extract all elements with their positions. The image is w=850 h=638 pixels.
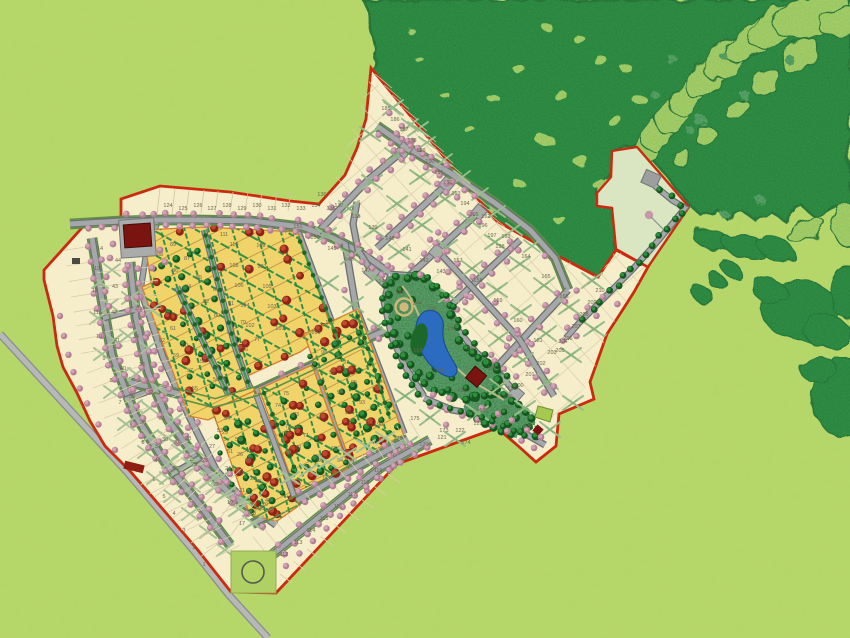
svg-text:90: 90 (377, 422, 383, 428)
svg-text:117: 117 (348, 492, 357, 498)
svg-text:111: 111 (220, 232, 228, 238)
svg-text:126: 126 (193, 203, 202, 209)
svg-text:193: 193 (451, 191, 460, 197)
svg-text:118: 118 (361, 480, 370, 486)
svg-text:166: 166 (559, 294, 568, 300)
svg-text:36: 36 (173, 466, 179, 472)
svg-text:137: 137 (334, 203, 343, 209)
svg-text:108: 108 (229, 263, 238, 269)
svg-text:62: 62 (159, 338, 165, 344)
svg-text:40: 40 (120, 366, 126, 372)
svg-text:119: 119 (374, 468, 383, 474)
svg-text:43: 43 (112, 284, 118, 290)
svg-text:144: 144 (412, 301, 421, 307)
svg-text:171: 171 (501, 406, 510, 412)
svg-text:74: 74 (275, 403, 281, 409)
svg-text:158: 158 (473, 278, 482, 284)
svg-text:8: 8 (109, 378, 112, 384)
svg-text:169: 169 (457, 388, 466, 394)
svg-text:58: 58 (200, 359, 206, 365)
svg-text:172: 172 (523, 424, 532, 430)
svg-text:4: 4 (154, 458, 157, 464)
svg-text:6: 6 (152, 477, 155, 483)
svg-text:132: 132 (281, 203, 290, 209)
svg-text:3: 3 (182, 528, 185, 534)
svg-text:153: 153 (447, 326, 456, 332)
svg-text:86: 86 (172, 268, 178, 274)
svg-text:210: 210 (595, 288, 604, 294)
svg-text:157: 157 (453, 258, 462, 264)
svg-text:34: 34 (133, 334, 139, 340)
svg-text:201: 201 (525, 372, 534, 378)
svg-text:189: 189 (416, 148, 425, 154)
svg-text:10: 10 (96, 334, 102, 340)
svg-text:114: 114 (307, 528, 316, 534)
svg-text:35: 35 (135, 306, 141, 312)
svg-text:59: 59 (173, 353, 179, 359)
svg-text:199: 199 (503, 394, 512, 400)
svg-text:51: 51 (227, 449, 233, 455)
svg-text:112: 112 (280, 552, 289, 558)
svg-text:5: 5 (162, 494, 165, 500)
svg-text:191: 191 (434, 170, 443, 176)
svg-text:71: 71 (303, 433, 309, 439)
svg-text:87: 87 (184, 256, 190, 262)
svg-text:70: 70 (295, 445, 301, 451)
svg-text:5: 5 (141, 440, 144, 446)
svg-text:41: 41 (114, 338, 120, 344)
svg-text:159: 159 (493, 298, 502, 304)
svg-text:84: 84 (185, 284, 191, 290)
svg-text:151: 151 (293, 224, 302, 230)
svg-text:163: 163 (501, 234, 510, 240)
svg-text:170: 170 (479, 408, 488, 414)
svg-text:113: 113 (294, 540, 303, 546)
svg-text:164: 164 (521, 254, 530, 260)
svg-text:44: 44 (115, 258, 121, 264)
svg-text:14: 14 (97, 246, 103, 252)
svg-text:102: 102 (245, 323, 254, 329)
svg-text:149: 149 (327, 246, 336, 252)
svg-text:57: 57 (187, 368, 193, 374)
svg-text:4: 4 (172, 511, 175, 517)
svg-text:103: 103 (267, 304, 276, 310)
svg-text:24: 24 (225, 466, 231, 472)
svg-text:165: 165 (541, 274, 550, 280)
svg-text:7: 7 (118, 400, 121, 406)
svg-text:136: 136 (317, 192, 326, 198)
svg-text:82: 82 (203, 299, 209, 305)
svg-text:105: 105 (262, 284, 271, 290)
svg-text:152: 152 (427, 306, 436, 312)
svg-text:3: 3 (168, 475, 171, 481)
svg-text:50: 50 (245, 458, 251, 464)
svg-text:80: 80 (214, 313, 220, 319)
svg-text:55: 55 (192, 386, 198, 392)
svg-text:150: 150 (310, 235, 319, 241)
svg-text:85: 85 (196, 275, 202, 281)
svg-text:173: 173 (439, 428, 448, 434)
svg-text:73: 73 (293, 412, 299, 418)
svg-text:104: 104 (240, 303, 249, 309)
svg-text:186: 186 (390, 117, 399, 123)
svg-text:155: 155 (487, 366, 496, 372)
svg-text:33: 33 (139, 362, 145, 368)
svg-text:128: 128 (222, 203, 231, 209)
svg-text:197: 197 (487, 233, 496, 239)
svg-text:109: 109 (256, 243, 265, 249)
svg-text:26: 26 (237, 452, 243, 458)
svg-text:22: 22 (213, 482, 219, 488)
svg-text:188: 188 (407, 138, 416, 144)
svg-text:198: 198 (495, 244, 504, 250)
svg-text:81: 81 (228, 301, 234, 307)
svg-text:140: 140 (385, 236, 394, 242)
svg-text:209: 209 (587, 300, 596, 306)
svg-text:49: 49 (237, 470, 243, 476)
svg-text:194: 194 (460, 201, 469, 207)
svg-text:89: 89 (170, 242, 176, 248)
svg-text:116: 116 (334, 504, 343, 510)
svg-text:52: 52 (235, 437, 241, 443)
svg-text:115: 115 (320, 516, 329, 522)
svg-text:29: 29 (191, 462, 197, 468)
svg-text:127: 127 (207, 206, 216, 212)
svg-text:61: 61 (170, 326, 176, 332)
svg-text:106: 106 (234, 283, 243, 289)
svg-text:160: 160 (513, 318, 522, 324)
svg-text:143: 143 (436, 269, 445, 275)
svg-text:187: 187 (399, 127, 408, 133)
svg-text:162: 162 (481, 214, 490, 220)
svg-text:134: 134 (311, 203, 320, 209)
svg-text:11: 11 (93, 310, 99, 316)
svg-text:202: 202 (536, 361, 545, 367)
svg-text:32: 32 (147, 390, 153, 396)
svg-text:207: 207 (571, 324, 580, 330)
svg-text:72: 72 (285, 424, 291, 430)
svg-text:77: 77 (254, 337, 260, 343)
svg-text:123: 123 (473, 421, 482, 427)
svg-text:30: 30 (173, 440, 179, 446)
svg-text:94: 94 (337, 390, 343, 396)
svg-text:133: 133 (296, 206, 305, 212)
svg-text:65: 65 (331, 446, 337, 452)
svg-text:196: 196 (478, 223, 487, 229)
svg-text:208: 208 (579, 312, 588, 318)
svg-text:25: 25 (202, 458, 208, 464)
svg-text:21: 21 (239, 488, 245, 494)
svg-text:42: 42 (111, 310, 117, 316)
svg-text:131: 131 (267, 206, 276, 212)
svg-text:17: 17 (239, 521, 245, 527)
svg-text:195: 195 (469, 212, 478, 218)
svg-text:100: 100 (311, 330, 320, 336)
svg-text:205: 205 (555, 348, 564, 354)
svg-text:107: 107 (257, 264, 266, 270)
svg-text:141: 141 (402, 247, 411, 253)
svg-text:75: 75 (283, 391, 289, 397)
svg-text:190: 190 (425, 159, 434, 165)
svg-text:206: 206 (563, 336, 572, 342)
svg-text:175: 175 (410, 416, 419, 422)
svg-text:146: 146 (378, 279, 387, 285)
svg-text:20: 20 (262, 502, 268, 508)
svg-text:138: 138 (351, 214, 360, 220)
svg-text:91: 91 (367, 420, 373, 426)
svg-text:76: 76 (242, 347, 248, 353)
svg-text:129: 129 (237, 206, 246, 212)
svg-text:147: 147 (361, 268, 370, 274)
svg-text:185: 185 (381, 106, 390, 112)
svg-text:167: 167 (413, 348, 422, 354)
svg-text:29: 29 (222, 430, 228, 436)
svg-text:161: 161 (533, 338, 542, 344)
svg-text:2: 2 (192, 545, 195, 551)
svg-text:31: 31 (159, 416, 165, 422)
svg-text:124: 124 (163, 203, 172, 209)
svg-text:12: 12 (92, 288, 98, 294)
svg-text:148: 148 (344, 257, 353, 263)
svg-text:96: 96 (329, 370, 335, 376)
svg-text:142: 142 (419, 258, 428, 264)
svg-text:54: 54 (224, 416, 230, 422)
svg-text:121: 121 (437, 435, 446, 441)
svg-text:101: 101 (275, 326, 284, 332)
svg-text:19: 19 (227, 500, 233, 506)
svg-text:125: 125 (178, 206, 187, 212)
svg-text:110: 110 (230, 242, 239, 248)
svg-text:60: 60 (182, 343, 188, 349)
svg-text:154: 154 (467, 346, 476, 352)
svg-text:13: 13 (94, 266, 100, 272)
svg-text:9: 9 (102, 356, 105, 362)
svg-text:92: 92 (345, 410, 351, 416)
svg-text:30: 30 (162, 437, 168, 443)
svg-text:1: 1 (202, 562, 205, 568)
svg-text:93: 93 (359, 400, 365, 406)
svg-text:23: 23 (250, 476, 256, 482)
svg-text:38: 38 (140, 420, 146, 426)
svg-text:120: 120 (419, 442, 428, 448)
svg-text:95: 95 (351, 380, 357, 386)
svg-text:28: 28 (185, 436, 191, 442)
svg-text:200: 200 (514, 383, 523, 389)
svg-text:18: 18 (250, 511, 256, 517)
svg-text:6: 6 (129, 421, 132, 427)
svg-text:139: 139 (368, 225, 377, 231)
svg-text:192: 192 (443, 180, 452, 186)
svg-text:122: 122 (455, 428, 464, 434)
svg-text:37: 37 (155, 444, 161, 450)
svg-text:168: 168 (435, 368, 444, 374)
svg-text:145: 145 (395, 290, 404, 296)
svg-text:97: 97 (343, 360, 349, 366)
svg-text:176: 176 (393, 436, 402, 442)
svg-text:174: 174 (461, 440, 470, 446)
svg-text:39: 39 (129, 394, 135, 400)
svg-text:27: 27 (209, 444, 215, 450)
svg-text:130: 130 (252, 203, 261, 209)
